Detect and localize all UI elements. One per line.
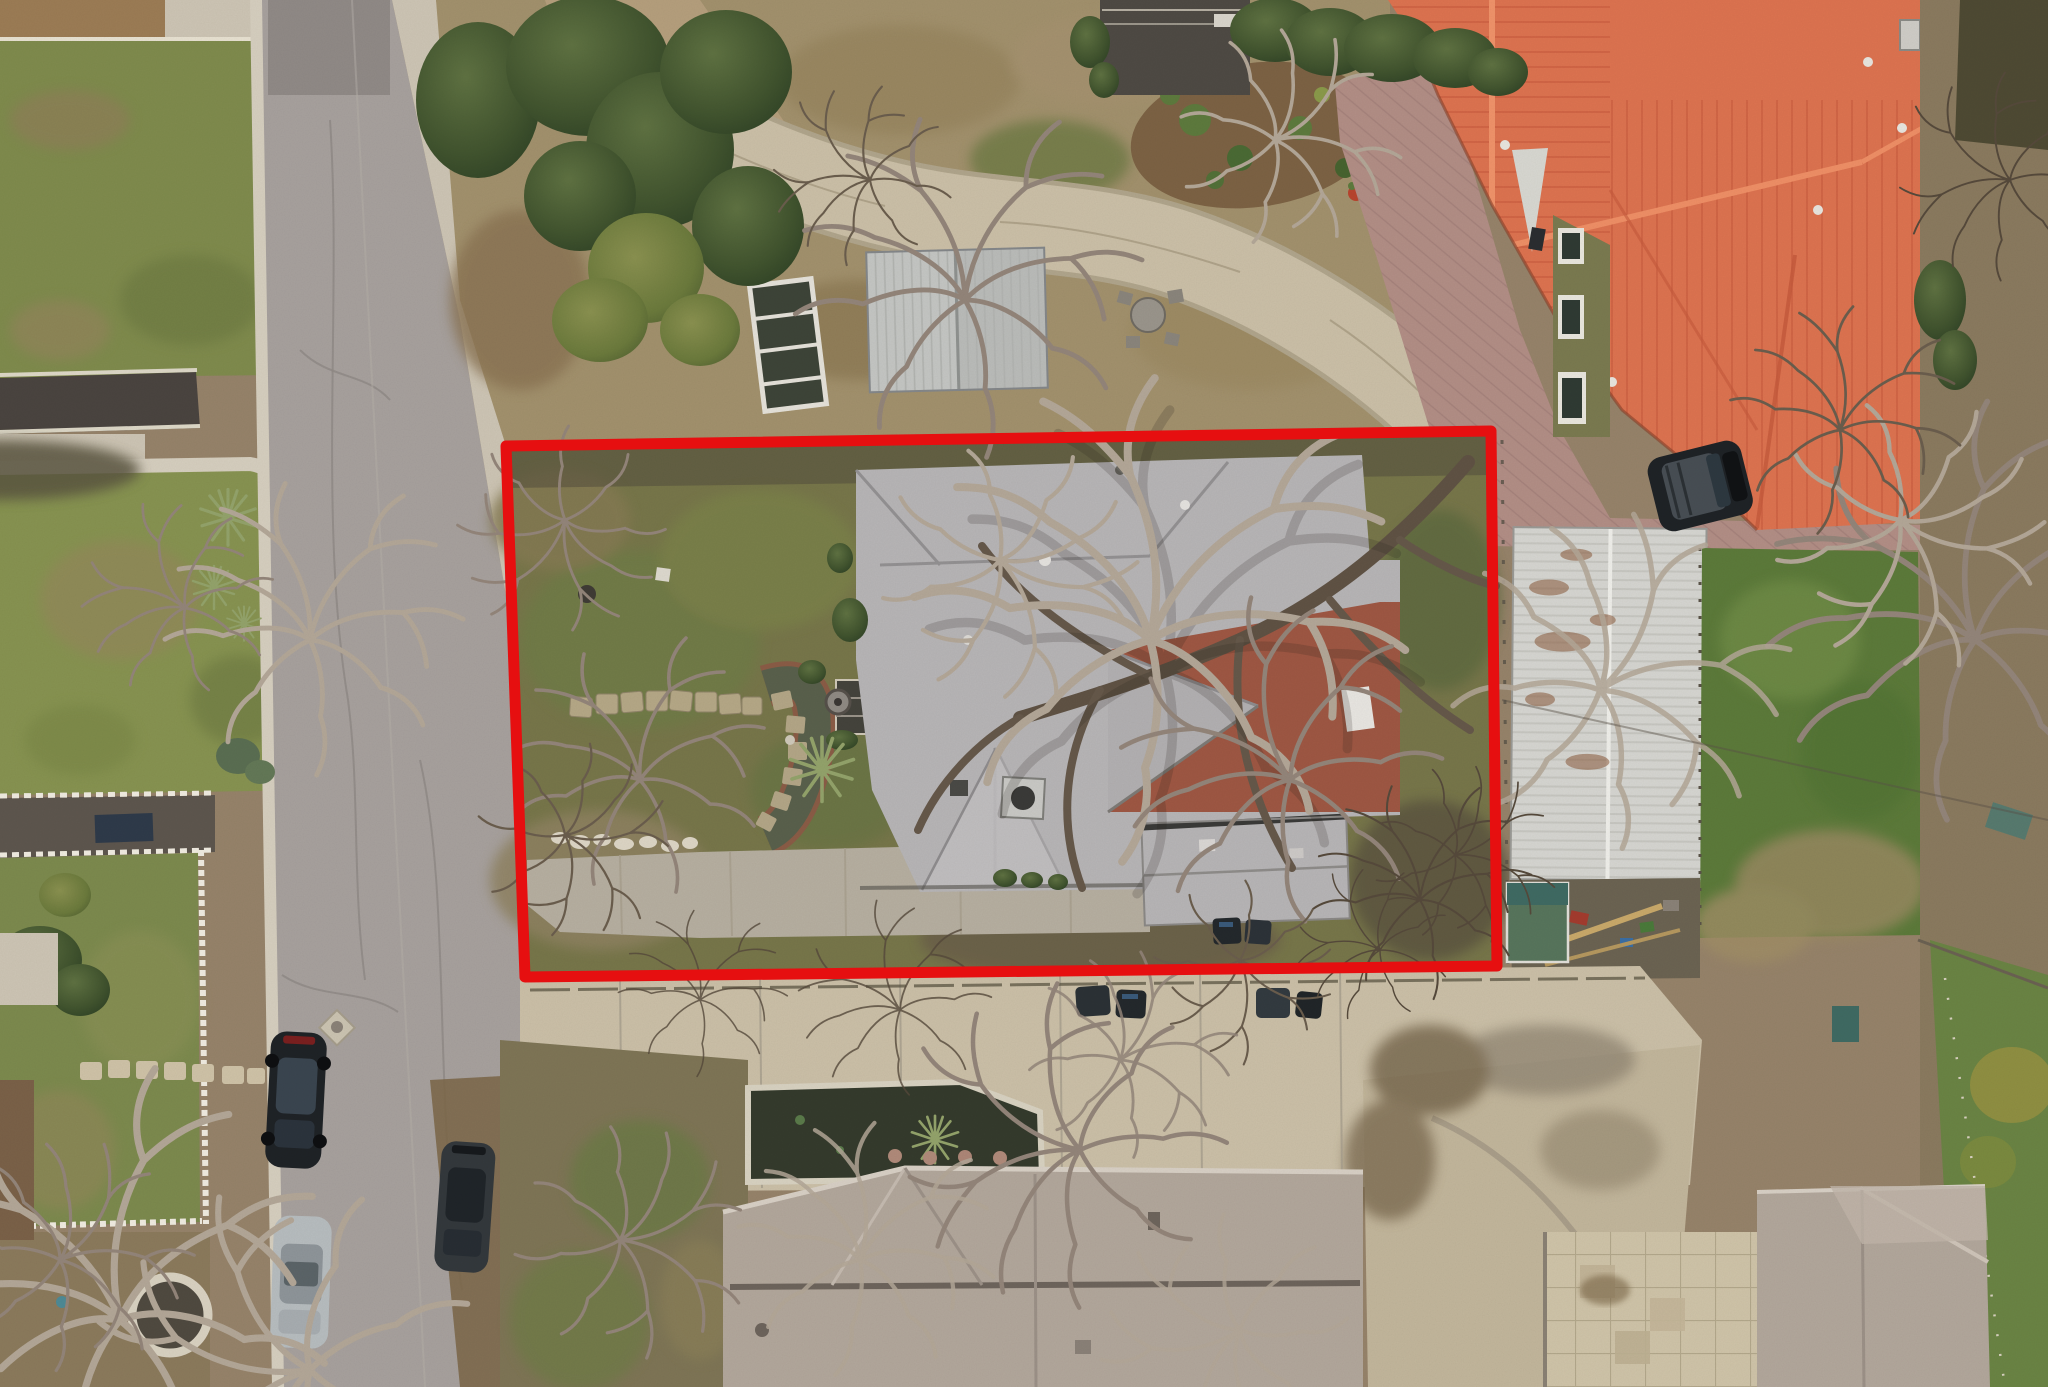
photo-grain-overlay [0,0,2048,1387]
aerial-photo [0,0,2048,1387]
